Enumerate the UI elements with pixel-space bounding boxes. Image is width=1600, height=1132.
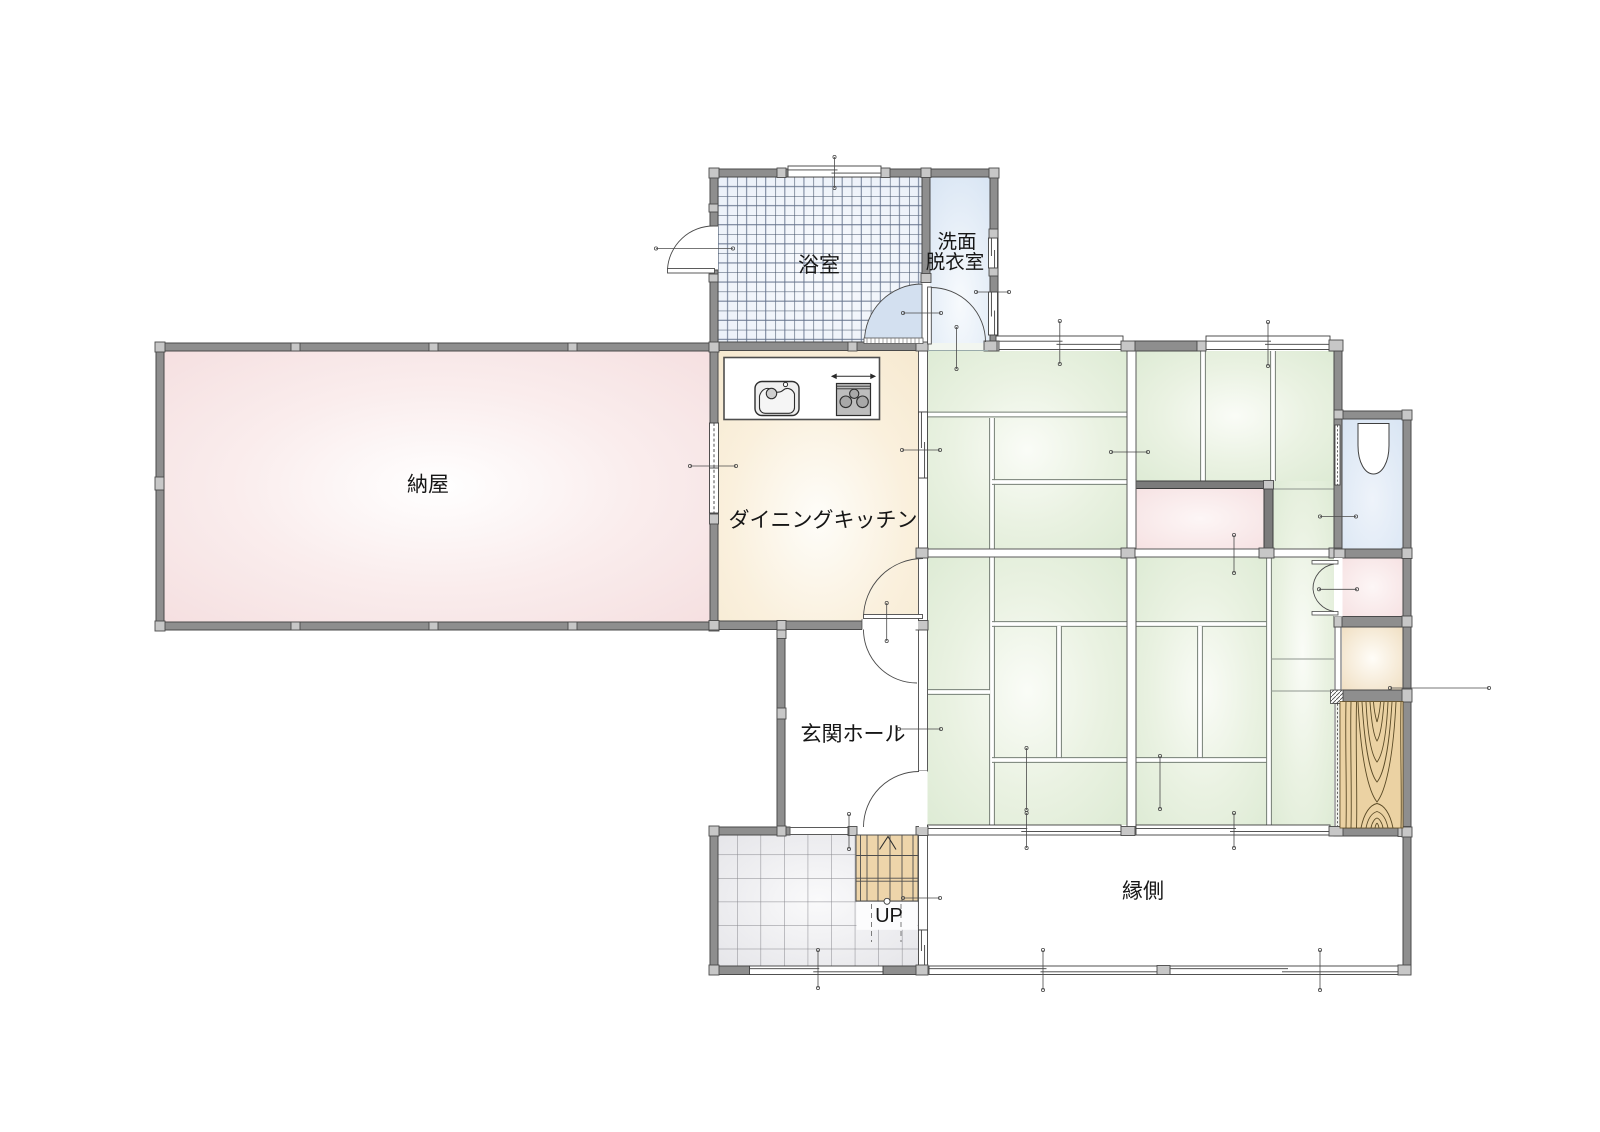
svg-text:納屋: 納屋 — [407, 474, 449, 497]
svg-text:ダイニングキッチン: ダイニングキッチン — [729, 509, 918, 532]
svg-text:洗面: 洗面 — [937, 231, 976, 253]
svg-text:玄関ホール: 玄関ホール — [801, 723, 906, 746]
svg-text:浴室: 浴室 — [798, 254, 840, 277]
svg-text:UP: UP — [875, 905, 903, 927]
svg-text:縁側: 縁側 — [1122, 880, 1164, 903]
svg-text:脱衣室: 脱衣室 — [926, 252, 985, 274]
